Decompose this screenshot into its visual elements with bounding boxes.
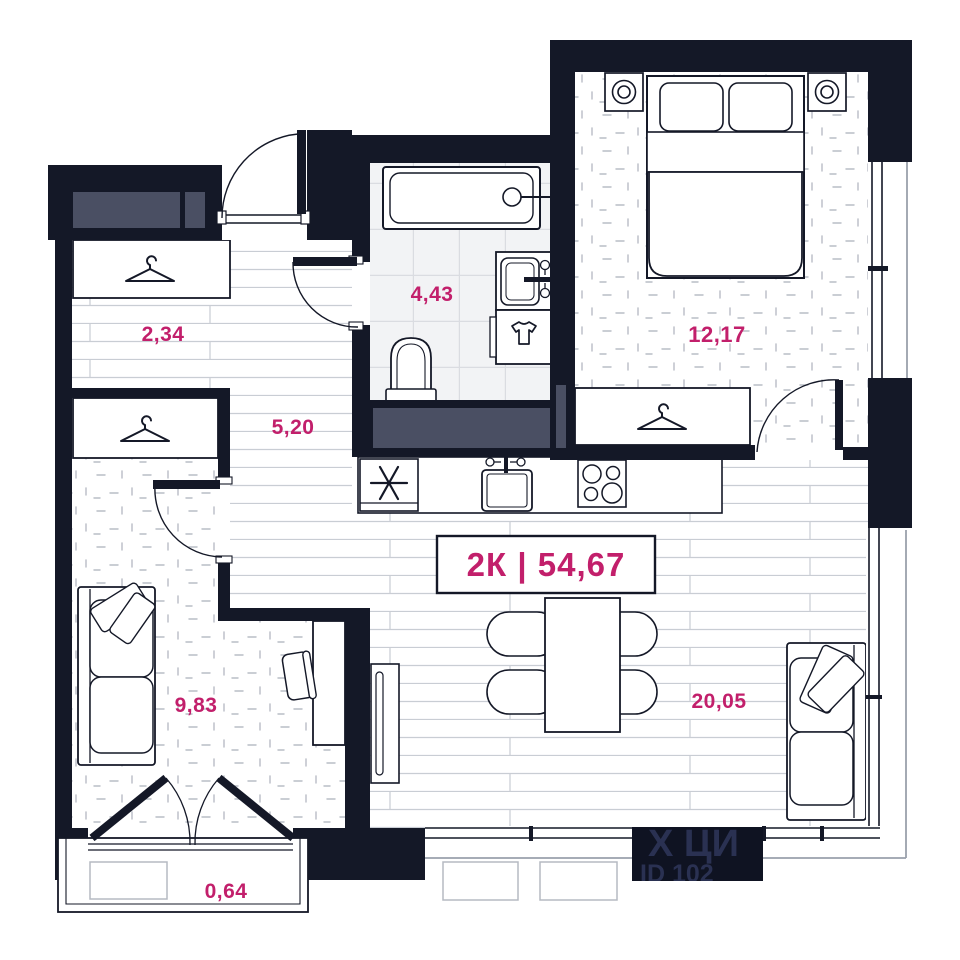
area-label-bathroom: 4,43 [411,283,454,306]
fridge [360,459,418,511]
area-label-balcony: 0,64 [205,880,248,903]
living-sofa [787,643,866,820]
bathtub [383,167,550,229]
bedroom-window [868,162,888,378]
nightstand-left [605,73,643,111]
bedroom-wardrobe [575,388,750,445]
door-leaf [293,257,357,266]
kitchen-sink [482,456,532,511]
bed-blanket-fold [647,132,804,172]
hall-wardrobe [73,240,230,298]
bed-pillow [660,83,723,131]
tv-unit [371,664,399,783]
desk [313,621,345,745]
area-label-hallway: 5,20 [272,416,315,439]
bed-blanket [649,172,802,276]
room-wardrobe [73,398,218,458]
floorplan-svg: 2,34 4,43 12,17 5,20 9,83 20,05 0,64 2К … [0,0,960,960]
watermark-logo: Х ЦИ [648,823,739,865]
stove [578,460,626,507]
watermark: Х ЦИ ID 102 [632,823,763,888]
washing-machine [490,310,551,364]
facade-boxes [443,862,617,900]
living-floor-upper [722,460,868,515]
area-label-hall-wardrobe: 2,34 [142,323,185,346]
living-window-right [866,528,882,841]
area-label-room: 9,83 [175,694,218,717]
title-badge: 2К | 54,67 [437,536,655,593]
door-leaf [297,130,306,214]
title-text: 2К | 54,67 [467,546,626,583]
bed-pillow [729,83,792,131]
door-leaf [835,380,843,450]
door-leaf [153,480,220,489]
area-label-bedroom: 12,17 [688,322,746,347]
door-swing-arc [222,134,298,218]
area-label-living: 20,05 [691,690,746,713]
bathtub-faucet-icon [503,188,521,206]
entrance-door [217,130,310,240]
balcony [58,838,308,912]
dining-table [545,598,620,732]
bathroom-sink [496,252,551,310]
nightstand-right [808,73,846,111]
double-bed [647,76,804,278]
floorplan: 2,34 4,43 12,17 5,20 9,83 20,05 0,64 2К … [0,0,960,960]
watermark-id: ID 102 [640,860,714,888]
toilet [386,338,436,402]
room-sofa [78,582,156,765]
